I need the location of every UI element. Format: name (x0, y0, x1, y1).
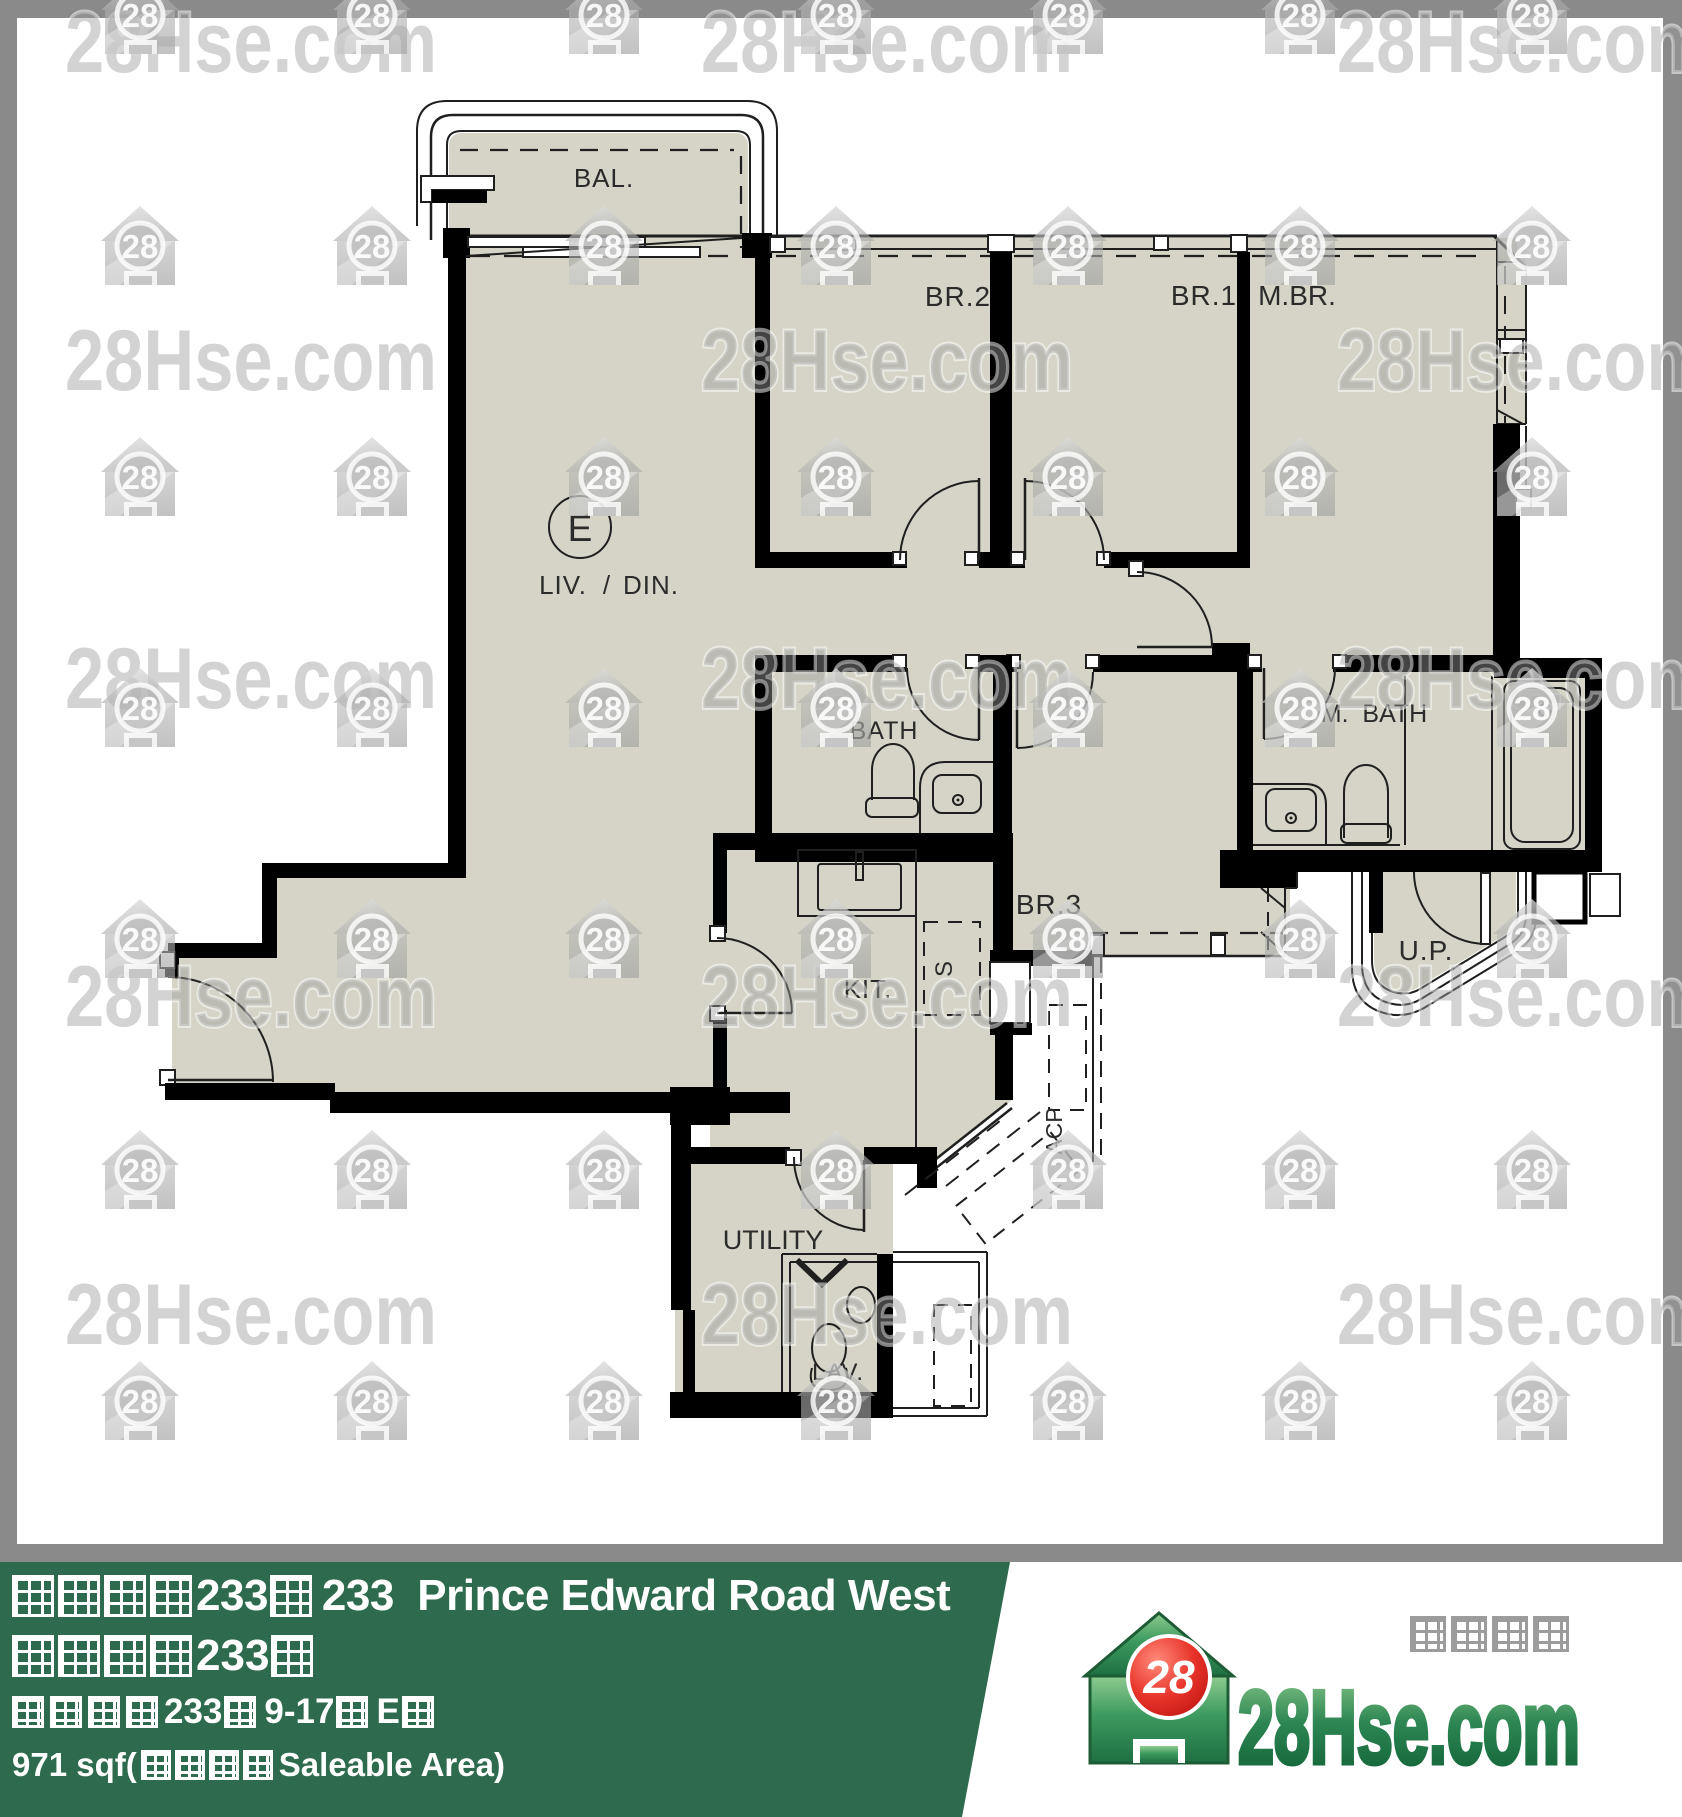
svg-text:28: 28 (1142, 1651, 1195, 1703)
svg-text:28Hse.com: 28Hse.com (1238, 1670, 1580, 1786)
